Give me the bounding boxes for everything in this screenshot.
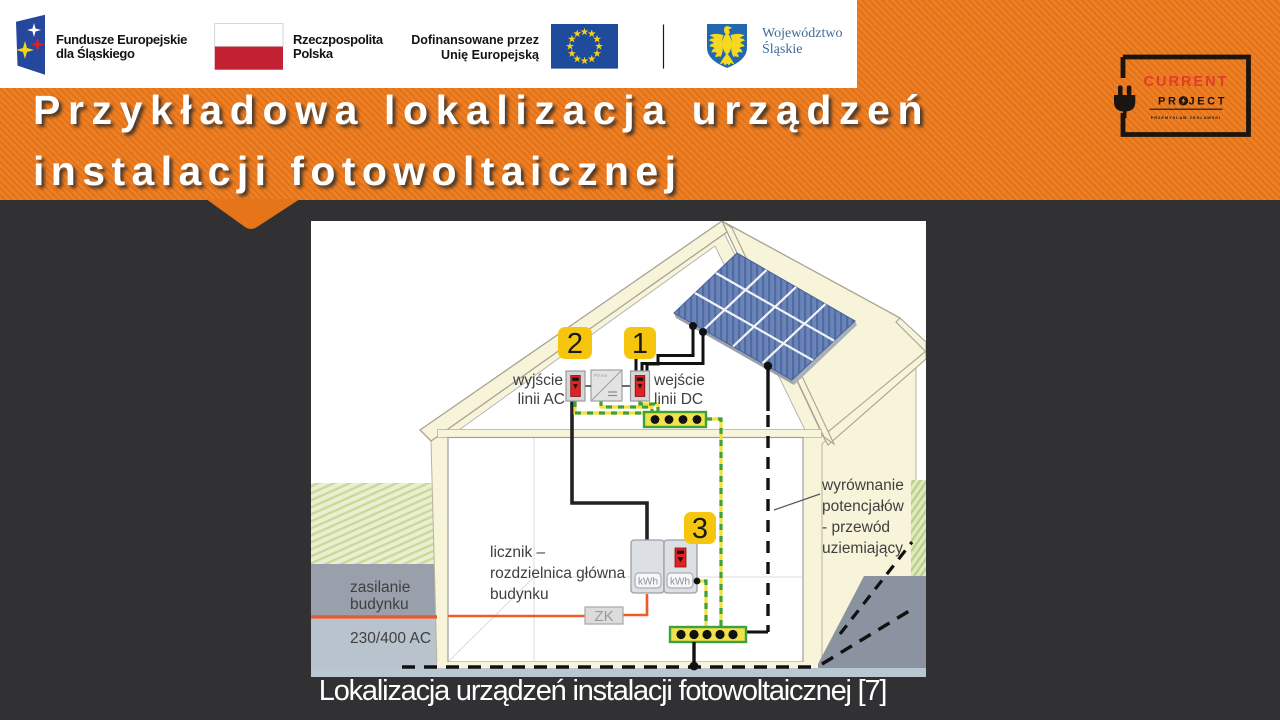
svg-text:kWh: kWh	[638, 577, 658, 588]
svg-text:2: 2	[567, 328, 583, 360]
svg-text:ZK: ZK	[594, 608, 613, 625]
svg-text:budynku: budynku	[490, 586, 549, 603]
svg-text:wejście: wejście	[653, 372, 705, 389]
svg-text:kWh: kWh	[670, 577, 690, 588]
svg-text:uziemiający: uziemiający	[822, 540, 903, 557]
svg-text:wyrównanie: wyrównanie	[821, 477, 904, 494]
svg-text:linii DC: linii DC	[654, 391, 703, 408]
svg-text:rozdzielnica główna: rozdzielnica główna	[490, 565, 626, 582]
svg-text:1: 1	[632, 328, 648, 360]
svg-text:3: 3	[692, 513, 708, 545]
svg-text:230/400 AC: 230/400 AC	[350, 630, 431, 647]
svg-text:PR: PR	[1158, 96, 1178, 108]
svg-text:- przewód: - przewód	[822, 519, 890, 536]
svg-text:wyjście: wyjście	[512, 372, 563, 389]
svg-text:linii AC: linii AC	[518, 391, 565, 408]
svg-text:PV inv: PV inv	[594, 373, 608, 378]
svg-text:budynku: budynku	[350, 596, 409, 613]
svg-text:PRZEMYSLAW ZEGLAWSKI: PRZEMYSLAW ZEGLAWSKI	[1151, 116, 1221, 120]
svg-text:zasilanie: zasilanie	[350, 579, 410, 596]
svg-text:licznik –: licznik –	[490, 544, 546, 561]
svg-text:CURRENT: CURRENT	[1144, 74, 1229, 90]
svg-text:potencjałów: potencjałów	[822, 498, 905, 515]
svg-text:JECT: JECT	[1189, 96, 1228, 108]
